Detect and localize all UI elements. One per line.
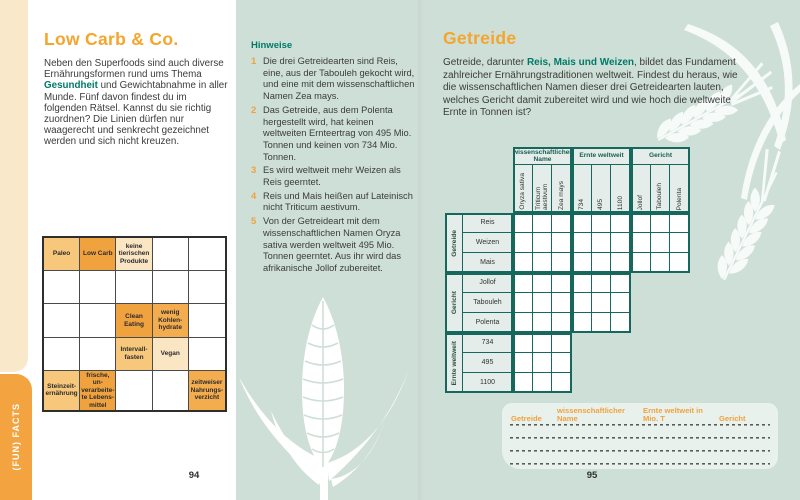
left-page-intro: Neben den Superfoods sind auch diverse E… [44, 58, 231, 148]
chapter-tab: (FUN) FACTS [0, 374, 32, 500]
logic-grid-cell [552, 233, 572, 253]
column-label-text: 495 [597, 199, 604, 210]
puzzle-cell-empty [153, 271, 189, 304]
logic-grid-cell [533, 293, 553, 313]
column-label-text: Polenta [676, 188, 683, 210]
logic-grid-cell [670, 213, 690, 233]
logic-grid-cell [592, 213, 612, 233]
answer-write-line [510, 450, 770, 452]
answer-column-header: Gericht [719, 415, 767, 423]
logic-grid-cell [592, 313, 612, 333]
answer-table: Getreide wissenschaftlicher Name Ernte w… [502, 403, 778, 469]
column-label: 495 [592, 165, 612, 213]
logic-grid-row: Polenta [463, 313, 631, 333]
left-page-title: Low Carb & Co. [44, 29, 178, 50]
logic-grid-cell [533, 213, 553, 233]
hints-title: Hinweise [251, 40, 419, 51]
right-page-intro: Getreide, darunter Reis, Mais und Weizen… [443, 57, 748, 120]
column-label: Jollof [631, 165, 651, 213]
puzzle-cell-empty [189, 238, 225, 271]
puzzle-cell: Low Carb [80, 238, 116, 271]
logic-grid-row: 495 [463, 353, 572, 373]
logic-grid-cell [611, 293, 631, 313]
logic-grid-column-labels: Oryza sativa Triticum aestivum Zea mays … [513, 165, 690, 213]
row-label: Tabouleh [463, 293, 513, 313]
column-label: Tabouleh [651, 165, 671, 213]
answer-column-header: Ernte weltweit in Mio. T [643, 407, 719, 424]
puzzle-cell-empty [44, 304, 80, 337]
row-label: Jollof [463, 273, 513, 293]
hint-number: 5 [251, 216, 263, 275]
hint-item: 2 Das Getreide, aus dem Polenta hergeste… [251, 105, 419, 164]
logic-grid-column-group-headers: wissenschaftlicher Name Ernte weltweit G… [513, 147, 690, 165]
row-label: 734 [463, 333, 513, 353]
answer-write-line [510, 424, 770, 426]
logic-grid-cell [513, 353, 533, 373]
logic-grid-cell [611, 313, 631, 333]
logic-grid-cell [572, 213, 592, 233]
logic-grid-cell [513, 233, 533, 253]
puzzle-cell-empty [116, 271, 152, 304]
column-label: Oryza sativa [513, 165, 533, 213]
logic-grid-cell [592, 253, 612, 273]
logic-grid-cell [592, 233, 612, 253]
column-label: 734 [572, 165, 592, 213]
row-group-label-text: Gericht [451, 291, 458, 314]
logic-grid-cell [611, 253, 631, 273]
intro-highlight: Gesundheit [44, 80, 98, 91]
puzzle-cell-empty [80, 304, 116, 337]
column-label-text: Zea mays [558, 181, 565, 210]
logic-grid-cell [513, 213, 533, 233]
hints-section: Hinweise 1 Die drei Getreidearten sind R… [251, 40, 419, 277]
column-group-header: wissenschaftlicher Name [513, 147, 572, 165]
column-group-header: Ernte weltweit [572, 147, 631, 165]
answer-column-header: wissenschaftlicher Name [557, 407, 643, 424]
puzzle-cell-empty [189, 271, 225, 304]
logic-grid-cell [552, 273, 572, 293]
row-label: Weizen [463, 233, 513, 253]
column-label-text: Oryza sativa [519, 173, 526, 210]
logic-grid-cell [651, 233, 671, 253]
puzzle-cell: Steinzeit­ernährung [44, 371, 80, 410]
intro-highlight: Reis, Mais und Weizen [527, 57, 634, 68]
column-label-text: Triticum aestivum [535, 166, 549, 210]
hint-item: 4 Reis und Mais heißen auf Lateinisch ni… [251, 191, 419, 214]
logic-grid-row: 734 [463, 333, 572, 353]
row-label: 495 [463, 353, 513, 373]
puzzle-cell: Clean Eating [116, 304, 152, 337]
logic-grid-cell [552, 293, 572, 313]
hint-number: 4 [251, 191, 263, 214]
logic-grid-cell [611, 273, 631, 293]
hint-text: Das Getreide, aus dem Polenta hergestell… [263, 105, 419, 164]
puzzle-cell: keine tierischen Produkte [116, 238, 152, 271]
row-group: Getreide Reis Weizen Mais [445, 213, 690, 273]
logic-grid-cell [631, 233, 651, 253]
column-label-text: 1100 [617, 196, 624, 210]
logic-grid-cell [572, 313, 592, 333]
hint-text: Reis und Mais heißen auf Lateinisch nich… [263, 191, 419, 214]
hint-number: 3 [251, 165, 263, 188]
puzzle-cell: frische, un­verarbeite­te Lebens­mittel [80, 371, 116, 410]
logic-grid-cell [552, 253, 572, 273]
column-group-header: Gericht [631, 147, 690, 165]
logic-grid-row: Weizen [463, 233, 690, 253]
hint-item: 3 Es wird weltweit mehr Weizen als Reis … [251, 165, 419, 188]
puzzle-cell-empty [44, 271, 80, 304]
logic-grid: wissenschaftlicher Name Ernte weltweit G… [445, 147, 690, 393]
row-group-label: Getreide [445, 213, 463, 273]
logic-grid-cell [513, 293, 533, 313]
logic-grid-row: 1100 [463, 373, 572, 393]
hint-item: 1 Die drei Getreidearten sind Reis, eine… [251, 56, 419, 103]
logic-grid-cell [552, 213, 572, 233]
logic-grid-cell [513, 273, 533, 293]
intro-text: Getreide, darunter [443, 57, 527, 68]
logic-grid-cell [651, 253, 671, 273]
logic-grid-cell [533, 333, 553, 353]
hint-text: Die drei Getreidearten sind Reis, eine, … [263, 56, 419, 103]
logic-grid-cell [533, 273, 553, 293]
answer-write-line [510, 437, 770, 439]
column-label: Zea mays [552, 165, 572, 213]
row-label: 1100 [463, 373, 513, 393]
answer-column-header: Getreide [511, 415, 557, 423]
logic-grid-cell [592, 293, 612, 313]
logic-grid-cell [611, 233, 631, 253]
logic-grid-cell [631, 213, 651, 233]
logic-grid-cell [533, 233, 553, 253]
puzzle-cell: wenig Kohlen­hydrate [153, 304, 189, 337]
row-label: Mais [463, 253, 513, 273]
logic-grid-cell [572, 293, 592, 313]
logic-grid-cell [572, 273, 592, 293]
logic-grid-row: Reis [463, 213, 690, 233]
column-label-text: 734 [578, 199, 585, 210]
book-spread: (FUN) FACTS Low Carb & Co. Neben den Sup… [0, 0, 800, 500]
puzzle-cell: Paleo [44, 238, 80, 271]
answer-write-line [510, 463, 770, 465]
logic-grid-row: Jollof [463, 273, 631, 293]
row-group-label: Ernte weltweit [445, 333, 463, 393]
column-label: Polenta [670, 165, 690, 213]
row-group: Gericht Jollof Tabouleh Polenta [445, 273, 690, 333]
row-group-label-text: Ernte weltweit [451, 341, 458, 385]
puzzle-cell: Vegan [153, 338, 189, 371]
logic-grid-cell [513, 253, 533, 273]
page-number-left: 94 [172, 470, 216, 481]
row-group: Ernte weltweit 734 495 1100 [445, 333, 690, 393]
column-label-text: Jollof [637, 195, 644, 210]
puzzle-cell-empty [80, 271, 116, 304]
right-page-title: Getreide [443, 28, 516, 49]
logic-grid-cell [533, 373, 553, 393]
row-group-label-text: Getreide [451, 230, 458, 257]
hint-text: Es wird weltweit mehr Weizen als Reis ge… [263, 165, 419, 188]
page-edge-strip [0, 0, 28, 372]
logic-grid-cell [533, 353, 553, 373]
logic-grid-cell [513, 313, 533, 333]
puzzle-cell-empty [80, 338, 116, 371]
hint-number: 2 [251, 105, 263, 164]
logic-grid-row: Tabouleh [463, 293, 631, 313]
puzzle-cell-empty [153, 238, 189, 271]
row-label: Polenta [463, 313, 513, 333]
logic-grid-cell [533, 313, 553, 333]
puzzle-cell-empty [116, 371, 152, 410]
logic-grid-cell [552, 373, 572, 393]
logic-grid-row: Mais [463, 253, 690, 273]
intro-text: Neben den Superfoods sind auch diverse E… [44, 58, 224, 80]
logic-grid-cell [513, 333, 533, 353]
hint-text: Von der Getreideart mit dem wissenschaft… [263, 216, 419, 275]
logic-grid-cell [552, 313, 572, 333]
hint-number: 1 [251, 56, 263, 103]
logic-grid-cell [513, 373, 533, 393]
row-group-label: Gericht [445, 273, 463, 333]
logic-grid-cell [631, 253, 651, 273]
logic-grid-cell [651, 213, 671, 233]
logic-grid-cell [670, 253, 690, 273]
matching-puzzle-grid: Paleo Low Carb keine tierischen Produkte… [42, 236, 227, 412]
row-group-rows: 734 495 1100 [463, 333, 572, 393]
column-label: Triticum aestivum [533, 165, 553, 213]
row-group-rows: Reis Weizen Mais [463, 213, 690, 273]
logic-grid-cell [670, 233, 690, 253]
hint-item: 5 Von der Getreideart mit dem wissenscha… [251, 216, 419, 275]
puzzle-cell: zeitweiser Nahrungs­verzicht [189, 371, 225, 410]
row-group-rows: Jollof Tabouleh Polenta [463, 273, 631, 333]
chapter-tab-label: (FUN) FACTS [11, 403, 21, 471]
answer-table-headers: Getreide wissenschaftlicher Name Ernte w… [511, 407, 767, 424]
logic-grid-cell [611, 213, 631, 233]
logic-grid-cell [552, 333, 572, 353]
logic-grid-cell [572, 253, 592, 273]
logic-grid-body: Getreide Reis Weizen Mais [445, 213, 690, 393]
column-label-text: Tabouleh [656, 183, 663, 210]
row-label: Reis [463, 213, 513, 233]
puzzle-cell-empty [189, 338, 225, 371]
puzzle-cell-empty [153, 371, 189, 410]
logic-grid-cell [572, 233, 592, 253]
puzzle-cell-empty [189, 304, 225, 337]
puzzle-cell: Intervall­fasten [116, 338, 152, 371]
logic-grid-cell [552, 353, 572, 373]
logic-grid-cell [592, 273, 612, 293]
column-label: 1100 [611, 165, 631, 213]
puzzle-cell-empty [44, 338, 80, 371]
logic-grid-cell [533, 253, 553, 273]
page-number-right: 95 [570, 470, 614, 481]
